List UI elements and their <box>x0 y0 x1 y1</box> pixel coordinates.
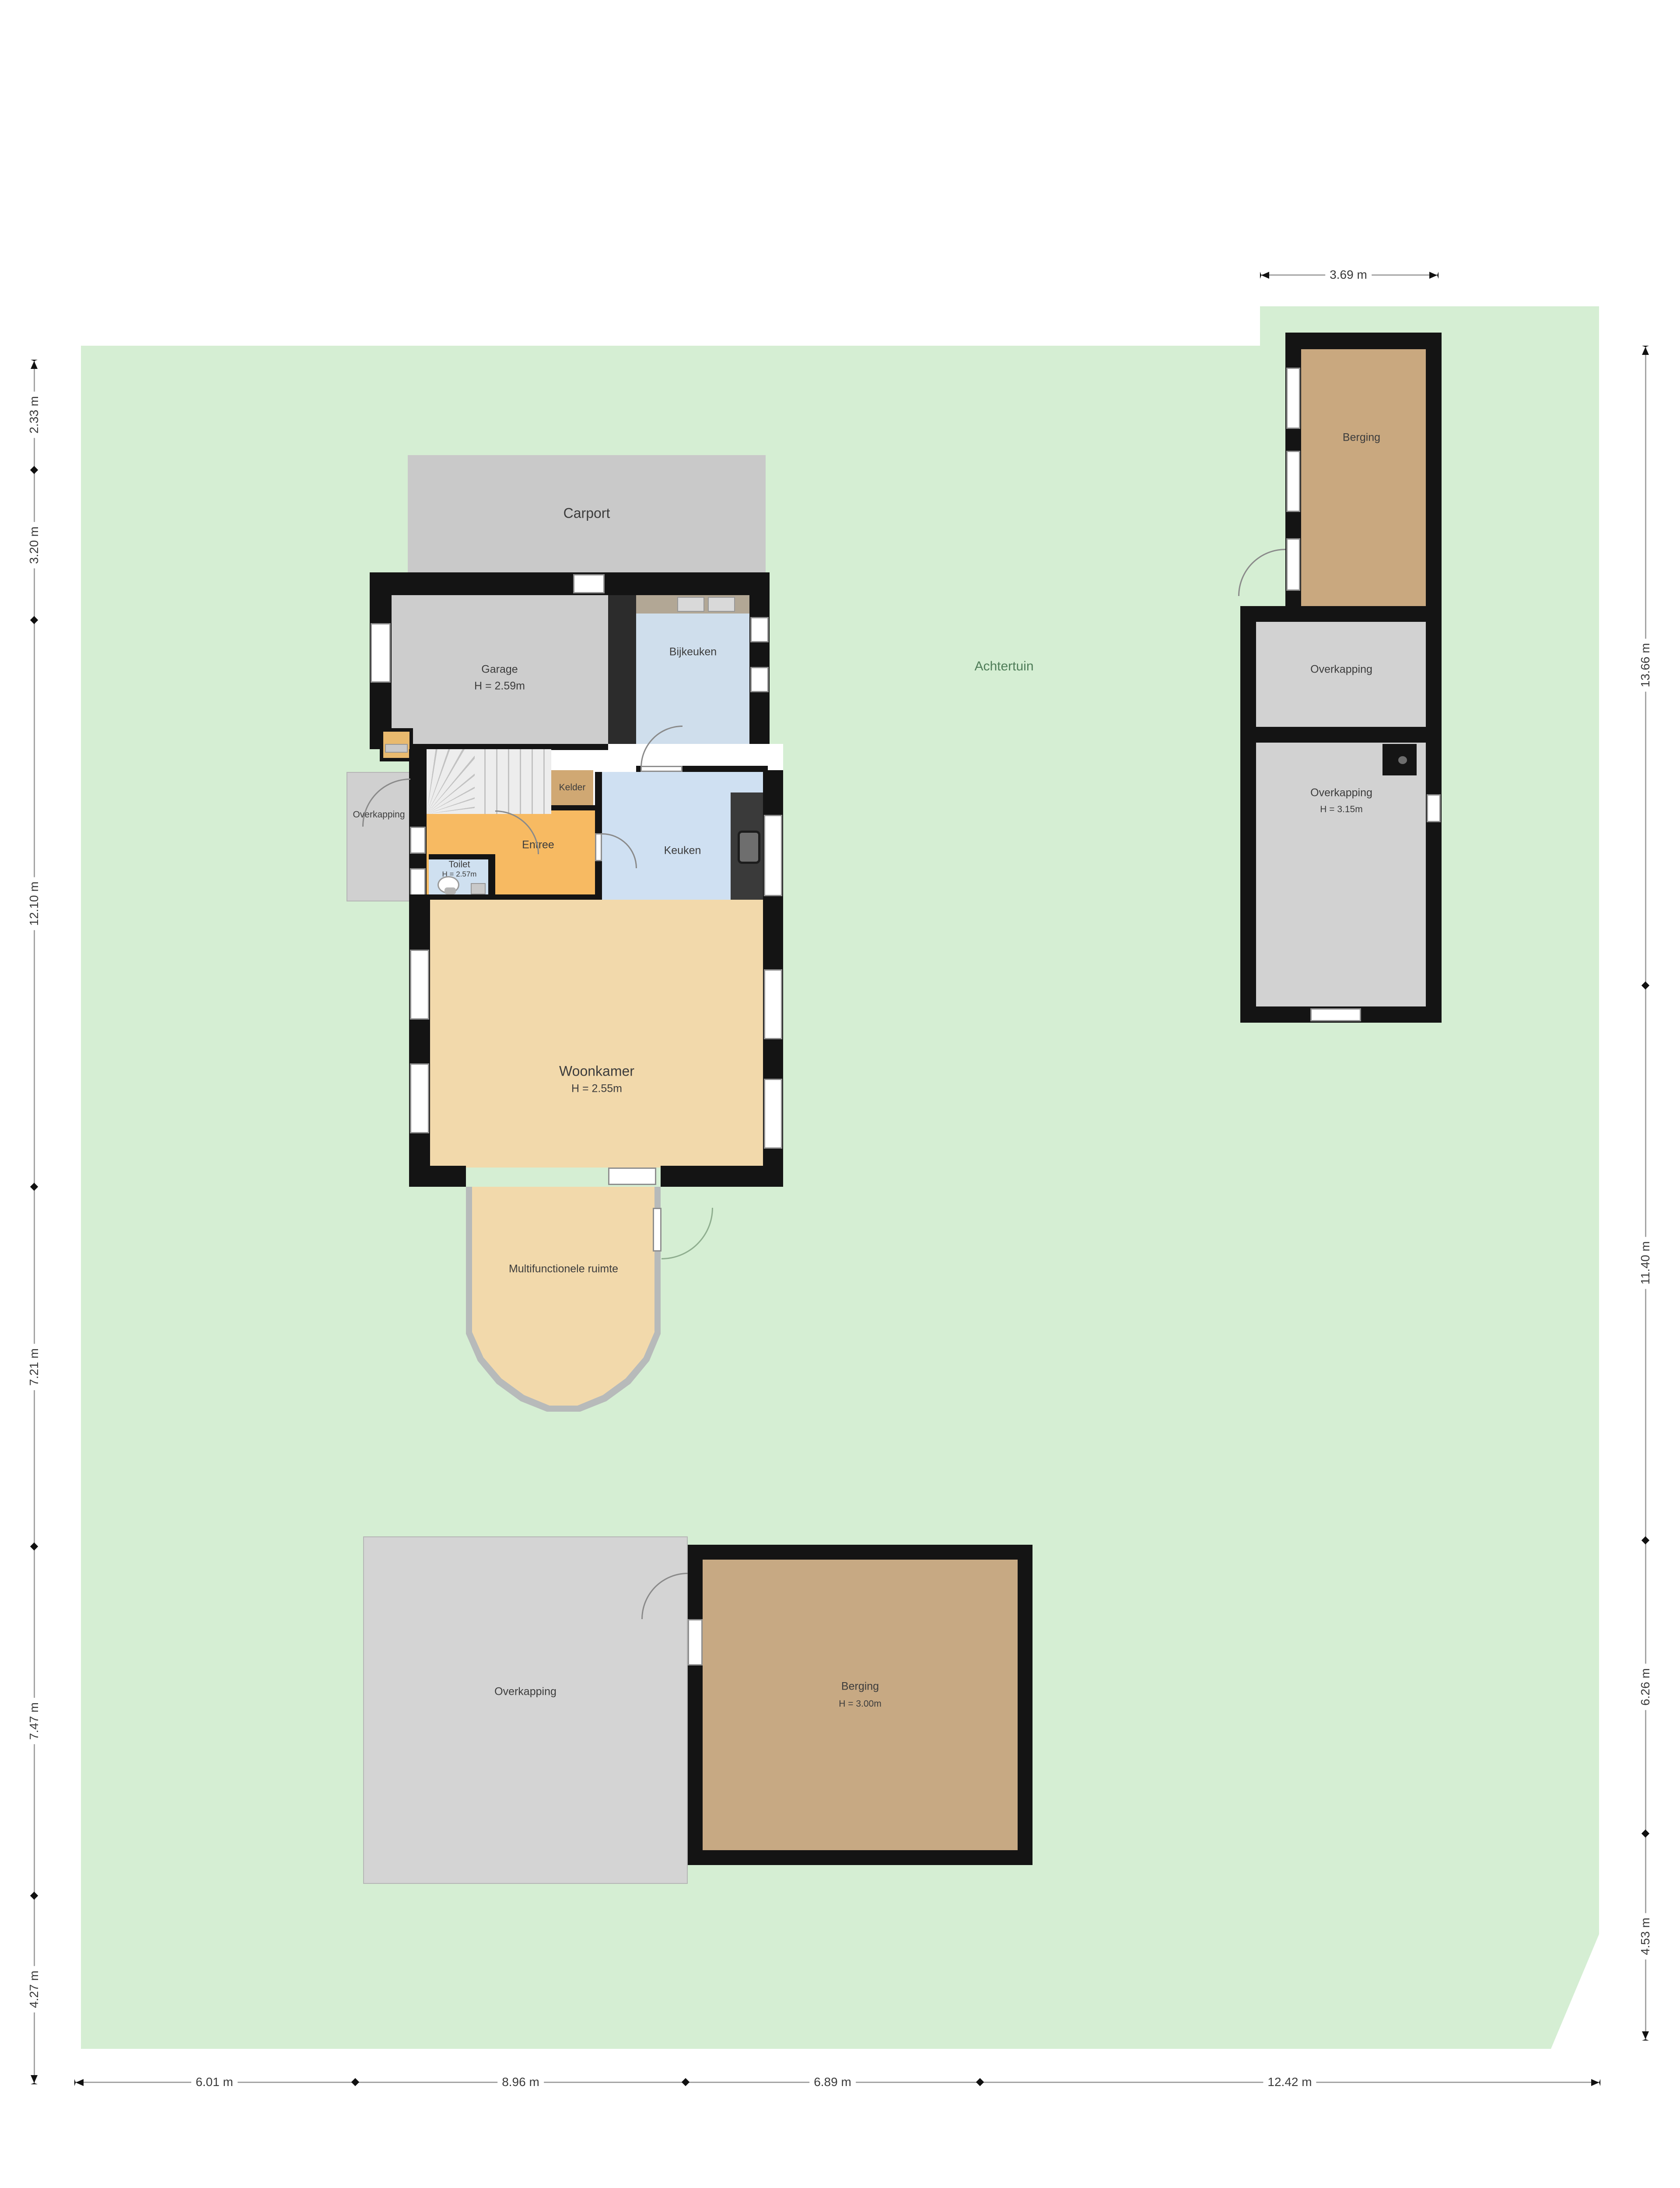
berging-right-label: Berging <box>1343 431 1380 444</box>
stove-unit-knob <box>1398 756 1407 764</box>
overkapping-window <box>1427 794 1441 822</box>
dimension-arrow <box>74 2079 84 2086</box>
dimension-label: 6.26 m <box>1637 1664 1654 1710</box>
multifunction-label: Multifunctionele ruimte <box>509 1263 618 1276</box>
berging-garden-door <box>688 1619 703 1666</box>
wall <box>1240 622 1256 727</box>
dimension-label: 12.10 m <box>26 877 42 930</box>
dimension-label: 11.40 m <box>1637 1237 1654 1289</box>
berging-garden-height: H = 3.00m <box>839 1699 881 1709</box>
wall <box>1426 622 1442 727</box>
multifunction-floor <box>472 1187 654 1406</box>
dimension-label: 3.69 m <box>1325 266 1372 283</box>
overkapping-right-lower-height: H = 3.15m <box>1320 804 1362 815</box>
wall <box>1426 349 1442 607</box>
dimension-label: 13.66 m <box>1637 638 1654 691</box>
wall <box>1285 333 1442 349</box>
berging-right-room <box>1301 349 1426 607</box>
dimension-arrow <box>1642 2031 1649 2041</box>
berging-window <box>1286 368 1300 429</box>
wall <box>1240 606 1442 622</box>
overkapping-right-mid-label: Overkapping <box>1310 663 1372 676</box>
wall <box>1426 743 1442 1023</box>
dimension-arrow <box>1642 346 1649 355</box>
overkapping-right-lower-label: Overkapping <box>1310 787 1372 799</box>
dimension-label: 7.21 m <box>26 1344 42 1390</box>
dimension-label: 6.89 m <box>809 2074 856 2090</box>
overkapping-right-lower-area <box>1256 743 1426 1006</box>
wall <box>1018 1545 1032 1865</box>
dimension-arrow <box>31 2075 38 2084</box>
berging-garden-label: Berging <box>841 1680 879 1693</box>
overkapping-garden-label: Overkapping <box>494 1686 556 1698</box>
dimension-label: 4.27 m <box>26 1966 42 2013</box>
wall <box>1240 727 1442 743</box>
wall <box>688 1545 1032 1560</box>
overkapping-garden-area <box>363 1536 688 1884</box>
dimension-arrow <box>31 360 38 369</box>
dimension-label: 6.01 m <box>191 2074 238 2090</box>
berging-window <box>1286 451 1300 512</box>
floorplan-page: Achtertuin Carport Garage H = 2.59m Bijk… <box>0 0 1680 2188</box>
wall <box>1240 743 1256 1023</box>
dimension-arrow <box>1591 2079 1600 2086</box>
multifunction-door <box>653 1208 661 1252</box>
dimension-arrow <box>1429 272 1438 279</box>
overkapping-window <box>1310 1008 1361 1021</box>
dimension-arrow <box>1260 272 1269 279</box>
wall <box>688 1545 703 1865</box>
dimension-line-right <box>1645 346 1646 2039</box>
dimension-label: 8.96 m <box>497 2074 544 2090</box>
wall <box>688 1850 1032 1865</box>
dimension-label: 4.53 m <box>1637 1913 1654 1960</box>
dimension-label: 12.42 m <box>1263 2074 1316 2090</box>
dimension-label: 2.33 m <box>26 392 42 438</box>
berging-door <box>1286 538 1300 591</box>
dimension-label: 3.20 m <box>26 522 42 568</box>
dimension-label: 7.47 m <box>26 1698 42 1744</box>
